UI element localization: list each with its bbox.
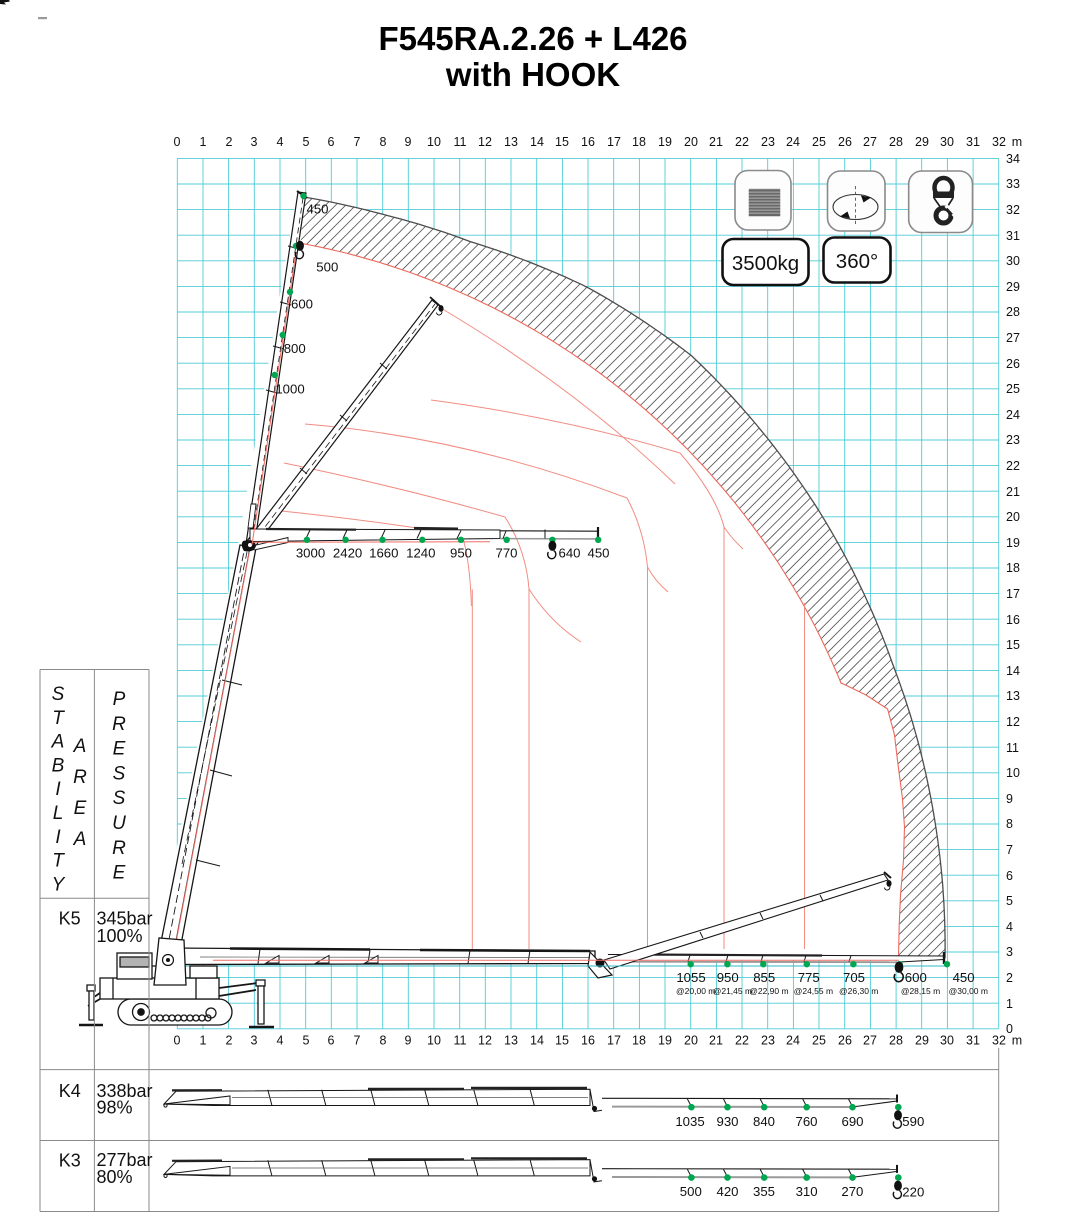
svg-text:22: 22 <box>1006 459 1020 473</box>
svg-text:10: 10 <box>427 1034 441 1048</box>
svg-text:220: 220 <box>902 1185 924 1200</box>
svg-text:600: 600 <box>905 970 927 985</box>
svg-text:24: 24 <box>786 1034 800 1048</box>
svg-text:21: 21 <box>709 135 723 149</box>
svg-text:31: 31 <box>966 1034 980 1048</box>
svg-text:950: 950 <box>450 546 472 561</box>
svg-text:500: 500 <box>316 260 338 275</box>
svg-text:590: 590 <box>902 1114 924 1129</box>
svg-text:24: 24 <box>786 135 800 149</box>
svg-text:1000: 1000 <box>275 382 304 397</box>
svg-text:16: 16 <box>581 1034 595 1048</box>
svg-text:K4: K4 <box>59 1081 81 1101</box>
svg-text:19: 19 <box>658 1034 672 1048</box>
svg-text:16: 16 <box>1006 613 1020 627</box>
svg-text:3500kg: 3500kg <box>732 252 799 275</box>
svg-text:K3: K3 <box>59 1150 81 1170</box>
svg-text:I: I <box>55 827 61 848</box>
svg-text:2: 2 <box>226 1034 233 1048</box>
svg-text:98%: 98% <box>97 1098 133 1118</box>
svg-text:@20,00 m: @20,00 m <box>676 986 715 996</box>
svg-text:7: 7 <box>1006 843 1013 857</box>
svg-text:9: 9 <box>405 1034 412 1048</box>
svg-text:4: 4 <box>1006 920 1013 934</box>
svg-text:31: 31 <box>966 135 980 149</box>
svg-text:R: R <box>73 767 87 788</box>
svg-text:11: 11 <box>454 1034 467 1048</box>
svg-text:3: 3 <box>1006 945 1013 959</box>
svg-text:27: 27 <box>863 1034 877 1048</box>
svg-text:855: 855 <box>753 970 775 985</box>
svg-text:3: 3 <box>251 1034 258 1048</box>
svg-text:28: 28 <box>889 1034 903 1048</box>
svg-text:A: A <box>73 829 87 850</box>
svg-text:@30,00 m: @30,00 m <box>949 986 988 996</box>
svg-text:12: 12 <box>478 1034 492 1048</box>
svg-text:A: A <box>51 732 65 753</box>
svg-text:23: 23 <box>761 135 775 149</box>
svg-text:6: 6 <box>328 1034 335 1048</box>
svg-text:7: 7 <box>354 1034 361 1048</box>
svg-text:@22,90 m: @22,90 m <box>749 986 788 996</box>
svg-text:18: 18 <box>632 135 646 149</box>
svg-text:10: 10 <box>1006 766 1020 780</box>
svg-text:690: 690 <box>841 1114 863 1129</box>
svg-text:5: 5 <box>303 135 310 149</box>
svg-text:@24,55 m: @24,55 m <box>794 986 833 996</box>
svg-text:2: 2 <box>226 135 233 149</box>
svg-text:26: 26 <box>1006 357 1020 371</box>
svg-text:4: 4 <box>277 1034 284 1048</box>
svg-text:21: 21 <box>1006 485 1020 499</box>
svg-text:S: S <box>113 763 126 784</box>
svg-text:1: 1 <box>1006 997 1013 1011</box>
svg-text:25: 25 <box>1006 382 1020 396</box>
svg-text:1660: 1660 <box>369 546 398 561</box>
svg-text:32: 32 <box>992 1034 1006 1048</box>
svg-text:450: 450 <box>953 970 975 985</box>
svg-text:450: 450 <box>306 202 328 217</box>
svg-text:15: 15 <box>555 1034 569 1048</box>
svg-text:m: m <box>1012 135 1022 149</box>
svg-text:80%: 80% <box>97 1167 133 1187</box>
svg-text:20: 20 <box>684 135 698 149</box>
svg-text:29: 29 <box>915 135 929 149</box>
svg-text:27: 27 <box>863 135 877 149</box>
svg-text:P: P <box>113 689 126 710</box>
svg-text:12: 12 <box>478 135 492 149</box>
svg-text:3: 3 <box>251 135 258 149</box>
svg-text:24: 24 <box>1006 408 1020 422</box>
svg-text:17: 17 <box>1006 587 1020 601</box>
svg-text:23: 23 <box>761 1034 775 1048</box>
svg-text:14: 14 <box>530 135 544 149</box>
svg-text:27: 27 <box>1006 331 1020 345</box>
svg-text:with HOOK: with HOOK <box>445 56 620 93</box>
svg-text:18: 18 <box>1006 561 1020 575</box>
svg-text:21: 21 <box>709 1034 723 1048</box>
svg-text:E: E <box>113 863 126 884</box>
svg-text:m: m <box>1012 1034 1022 1048</box>
svg-text:270: 270 <box>841 1184 863 1199</box>
svg-text:@28,15 m: @28,15 m <box>901 986 940 996</box>
svg-text:20: 20 <box>1006 510 1020 524</box>
svg-text:29: 29 <box>1006 280 1020 294</box>
svg-text:310: 310 <box>796 1184 818 1199</box>
svg-text:I: I <box>55 779 61 800</box>
svg-text:5: 5 <box>1006 894 1013 908</box>
svg-text:22: 22 <box>735 135 749 149</box>
svg-text:20: 20 <box>684 1034 698 1048</box>
svg-text:500: 500 <box>680 1184 702 1199</box>
svg-text:11: 11 <box>1006 741 1019 755</box>
svg-text:E: E <box>113 739 126 760</box>
svg-text:S: S <box>52 684 65 705</box>
svg-text:17: 17 <box>607 135 621 149</box>
svg-text:28: 28 <box>889 135 903 149</box>
svg-text:0: 0 <box>1006 1022 1013 1036</box>
svg-text:770: 770 <box>495 546 517 561</box>
svg-text:@26,30 m: @26,30 m <box>839 986 878 996</box>
svg-text:25: 25 <box>812 135 826 149</box>
svg-text:19: 19 <box>658 135 672 149</box>
svg-text:3000: 3000 <box>296 546 325 561</box>
svg-text:T: T <box>52 708 65 729</box>
svg-text:9: 9 <box>405 135 412 149</box>
svg-text:Y: Y <box>52 874 66 895</box>
svg-text:U: U <box>112 813 126 834</box>
svg-text:28: 28 <box>1006 305 1020 319</box>
svg-text:K5: K5 <box>59 909 81 929</box>
svg-text:2420: 2420 <box>333 546 362 561</box>
svg-text:10: 10 <box>427 135 441 149</box>
svg-text:34: 34 <box>1006 152 1020 166</box>
svg-text:22: 22 <box>735 1034 749 1048</box>
svg-text:1: 1 <box>200 1034 207 1048</box>
svg-text:30: 30 <box>940 135 954 149</box>
svg-text:14: 14 <box>1006 664 1020 678</box>
svg-text:355: 355 <box>753 1184 775 1199</box>
svg-text:5: 5 <box>303 1034 310 1048</box>
svg-text:640: 640 <box>558 546 580 561</box>
svg-text:18: 18 <box>632 1034 646 1048</box>
svg-text:@21,45 m: @21,45 m <box>713 986 752 996</box>
svg-text:25: 25 <box>812 1034 826 1048</box>
svg-text:4: 4 <box>277 135 284 149</box>
svg-text:450: 450 <box>587 546 609 561</box>
svg-text:F545RA.2.26 + L426: F545RA.2.26 + L426 <box>378 20 687 57</box>
svg-text:16: 16 <box>581 135 595 149</box>
svg-text:930: 930 <box>716 1114 738 1129</box>
svg-text:29: 29 <box>915 1034 929 1048</box>
svg-text:33: 33 <box>1006 177 1020 191</box>
svg-text:B: B <box>52 755 65 776</box>
svg-text:420: 420 <box>716 1184 738 1199</box>
svg-text:8: 8 <box>1006 817 1013 831</box>
svg-text:17: 17 <box>607 1034 621 1048</box>
svg-text:30: 30 <box>1006 254 1020 268</box>
svg-text:6: 6 <box>1006 869 1013 883</box>
svg-text:13: 13 <box>504 135 518 149</box>
svg-text:15: 15 <box>555 135 569 149</box>
svg-text:7: 7 <box>354 135 361 149</box>
svg-text:13: 13 <box>504 1034 518 1048</box>
svg-text:800: 800 <box>284 341 306 356</box>
svg-text:19: 19 <box>1006 536 1020 550</box>
svg-text:950: 950 <box>717 970 739 985</box>
svg-text:0: 0 <box>174 135 181 149</box>
svg-text:S: S <box>113 788 126 809</box>
svg-text:23: 23 <box>1006 433 1020 447</box>
svg-text:11: 11 <box>454 135 467 149</box>
svg-text:2: 2 <box>1006 971 1013 985</box>
svg-text:12: 12 <box>1006 715 1020 729</box>
svg-text:30: 30 <box>940 1034 954 1048</box>
svg-text:1055: 1055 <box>676 970 705 985</box>
svg-text:31: 31 <box>1006 229 1020 243</box>
svg-text:13: 13 <box>1006 689 1020 703</box>
svg-text:14: 14 <box>530 1034 544 1048</box>
svg-text:0: 0 <box>174 1034 181 1048</box>
svg-text:100%: 100% <box>97 926 143 946</box>
svg-text:1: 1 <box>200 135 207 149</box>
svg-text:R: R <box>112 838 126 859</box>
svg-text:8: 8 <box>380 135 387 149</box>
svg-text:705: 705 <box>843 970 865 985</box>
svg-text:1035: 1035 <box>675 1114 704 1129</box>
svg-text:1240: 1240 <box>406 546 435 561</box>
svg-text:600: 600 <box>291 296 313 311</box>
svg-text:32: 32 <box>992 135 1006 149</box>
svg-text:15: 15 <box>1006 638 1020 652</box>
svg-text:840: 840 <box>753 1114 775 1129</box>
svg-text:26: 26 <box>838 1034 852 1048</box>
svg-text:E: E <box>74 798 87 819</box>
svg-text:T: T <box>52 851 65 872</box>
svg-text:760: 760 <box>795 1114 817 1129</box>
svg-text:R: R <box>112 714 126 735</box>
svg-text:360°: 360° <box>836 250 878 273</box>
svg-text:L: L <box>53 803 64 824</box>
svg-text:775: 775 <box>798 970 820 985</box>
svg-text:32: 32 <box>1006 203 1020 217</box>
svg-text:26: 26 <box>838 135 852 149</box>
svg-text:A: A <box>73 736 87 757</box>
svg-text:6: 6 <box>328 135 335 149</box>
svg-text:8: 8 <box>380 1034 387 1048</box>
svg-text:9: 9 <box>1006 792 1013 806</box>
